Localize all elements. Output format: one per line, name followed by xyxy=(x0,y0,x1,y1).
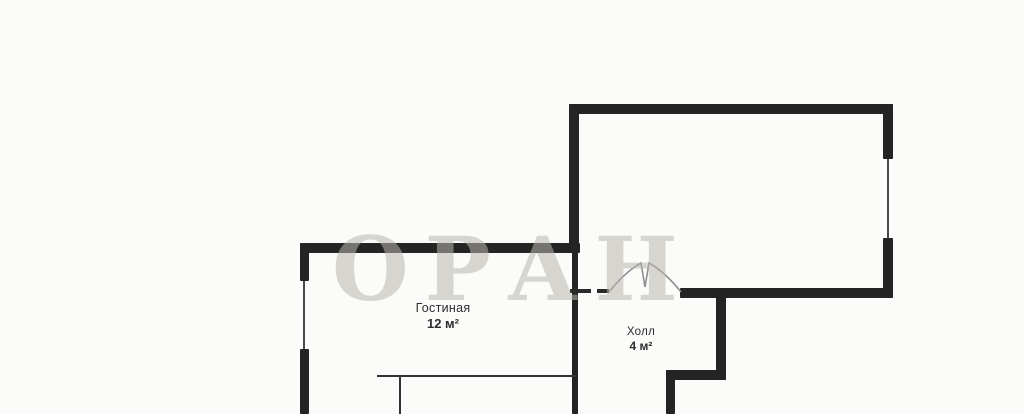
wall-hall-step xyxy=(666,370,726,380)
double-door-swing xyxy=(0,0,1024,414)
window-living-left xyxy=(303,281,305,349)
window-upper-room-right xyxy=(887,159,889,238)
wall-living-left-lower xyxy=(300,349,309,414)
room-label-living: Гостиная 12 м² xyxy=(416,301,471,331)
wall-hall-right-upper xyxy=(716,293,726,380)
room-name-hall: Холл xyxy=(627,326,655,338)
floorplan-canvas: ОРАН Гостиная 12 м² Холл 4 м² xyxy=(0,0,1024,414)
room-name-living: Гостиная xyxy=(416,301,471,315)
furniture-line-horizontal xyxy=(377,375,577,377)
watermark-text: ОРАН xyxy=(332,224,677,314)
wall-living-left-upper xyxy=(300,243,309,281)
room-area-living: 12 м² xyxy=(416,316,471,331)
wall-upper-room-top xyxy=(569,104,893,114)
wall-hall-right-lower xyxy=(666,370,675,414)
room-area-hall: 4 м² xyxy=(627,339,655,353)
furniture-line-vertical xyxy=(399,377,401,414)
wall-upper-room-bottom xyxy=(680,288,893,298)
wall-upper-room-right-upper xyxy=(883,104,893,159)
room-label-hall: Холл 4 м² xyxy=(627,326,655,353)
